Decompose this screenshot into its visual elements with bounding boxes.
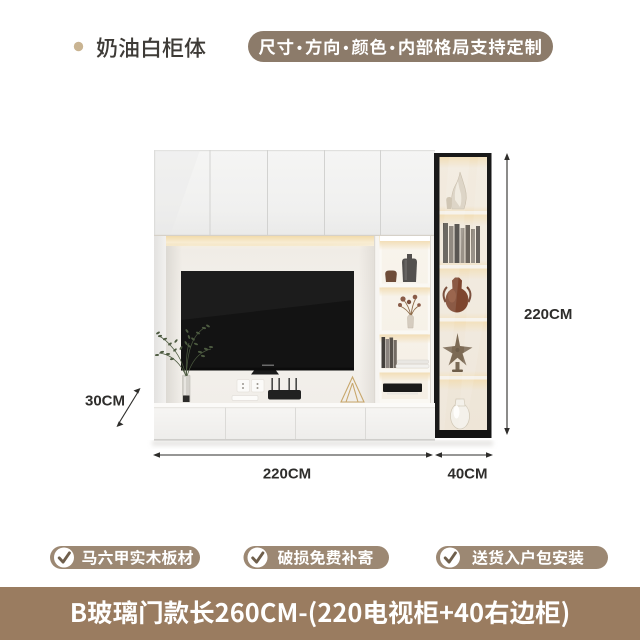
svg-text:220CM: 220CM xyxy=(263,466,311,483)
svg-text:40CM: 40CM xyxy=(447,466,487,483)
svg-text:30CM: 30CM xyxy=(85,393,125,410)
svg-text:220CM: 220CM xyxy=(524,306,572,323)
